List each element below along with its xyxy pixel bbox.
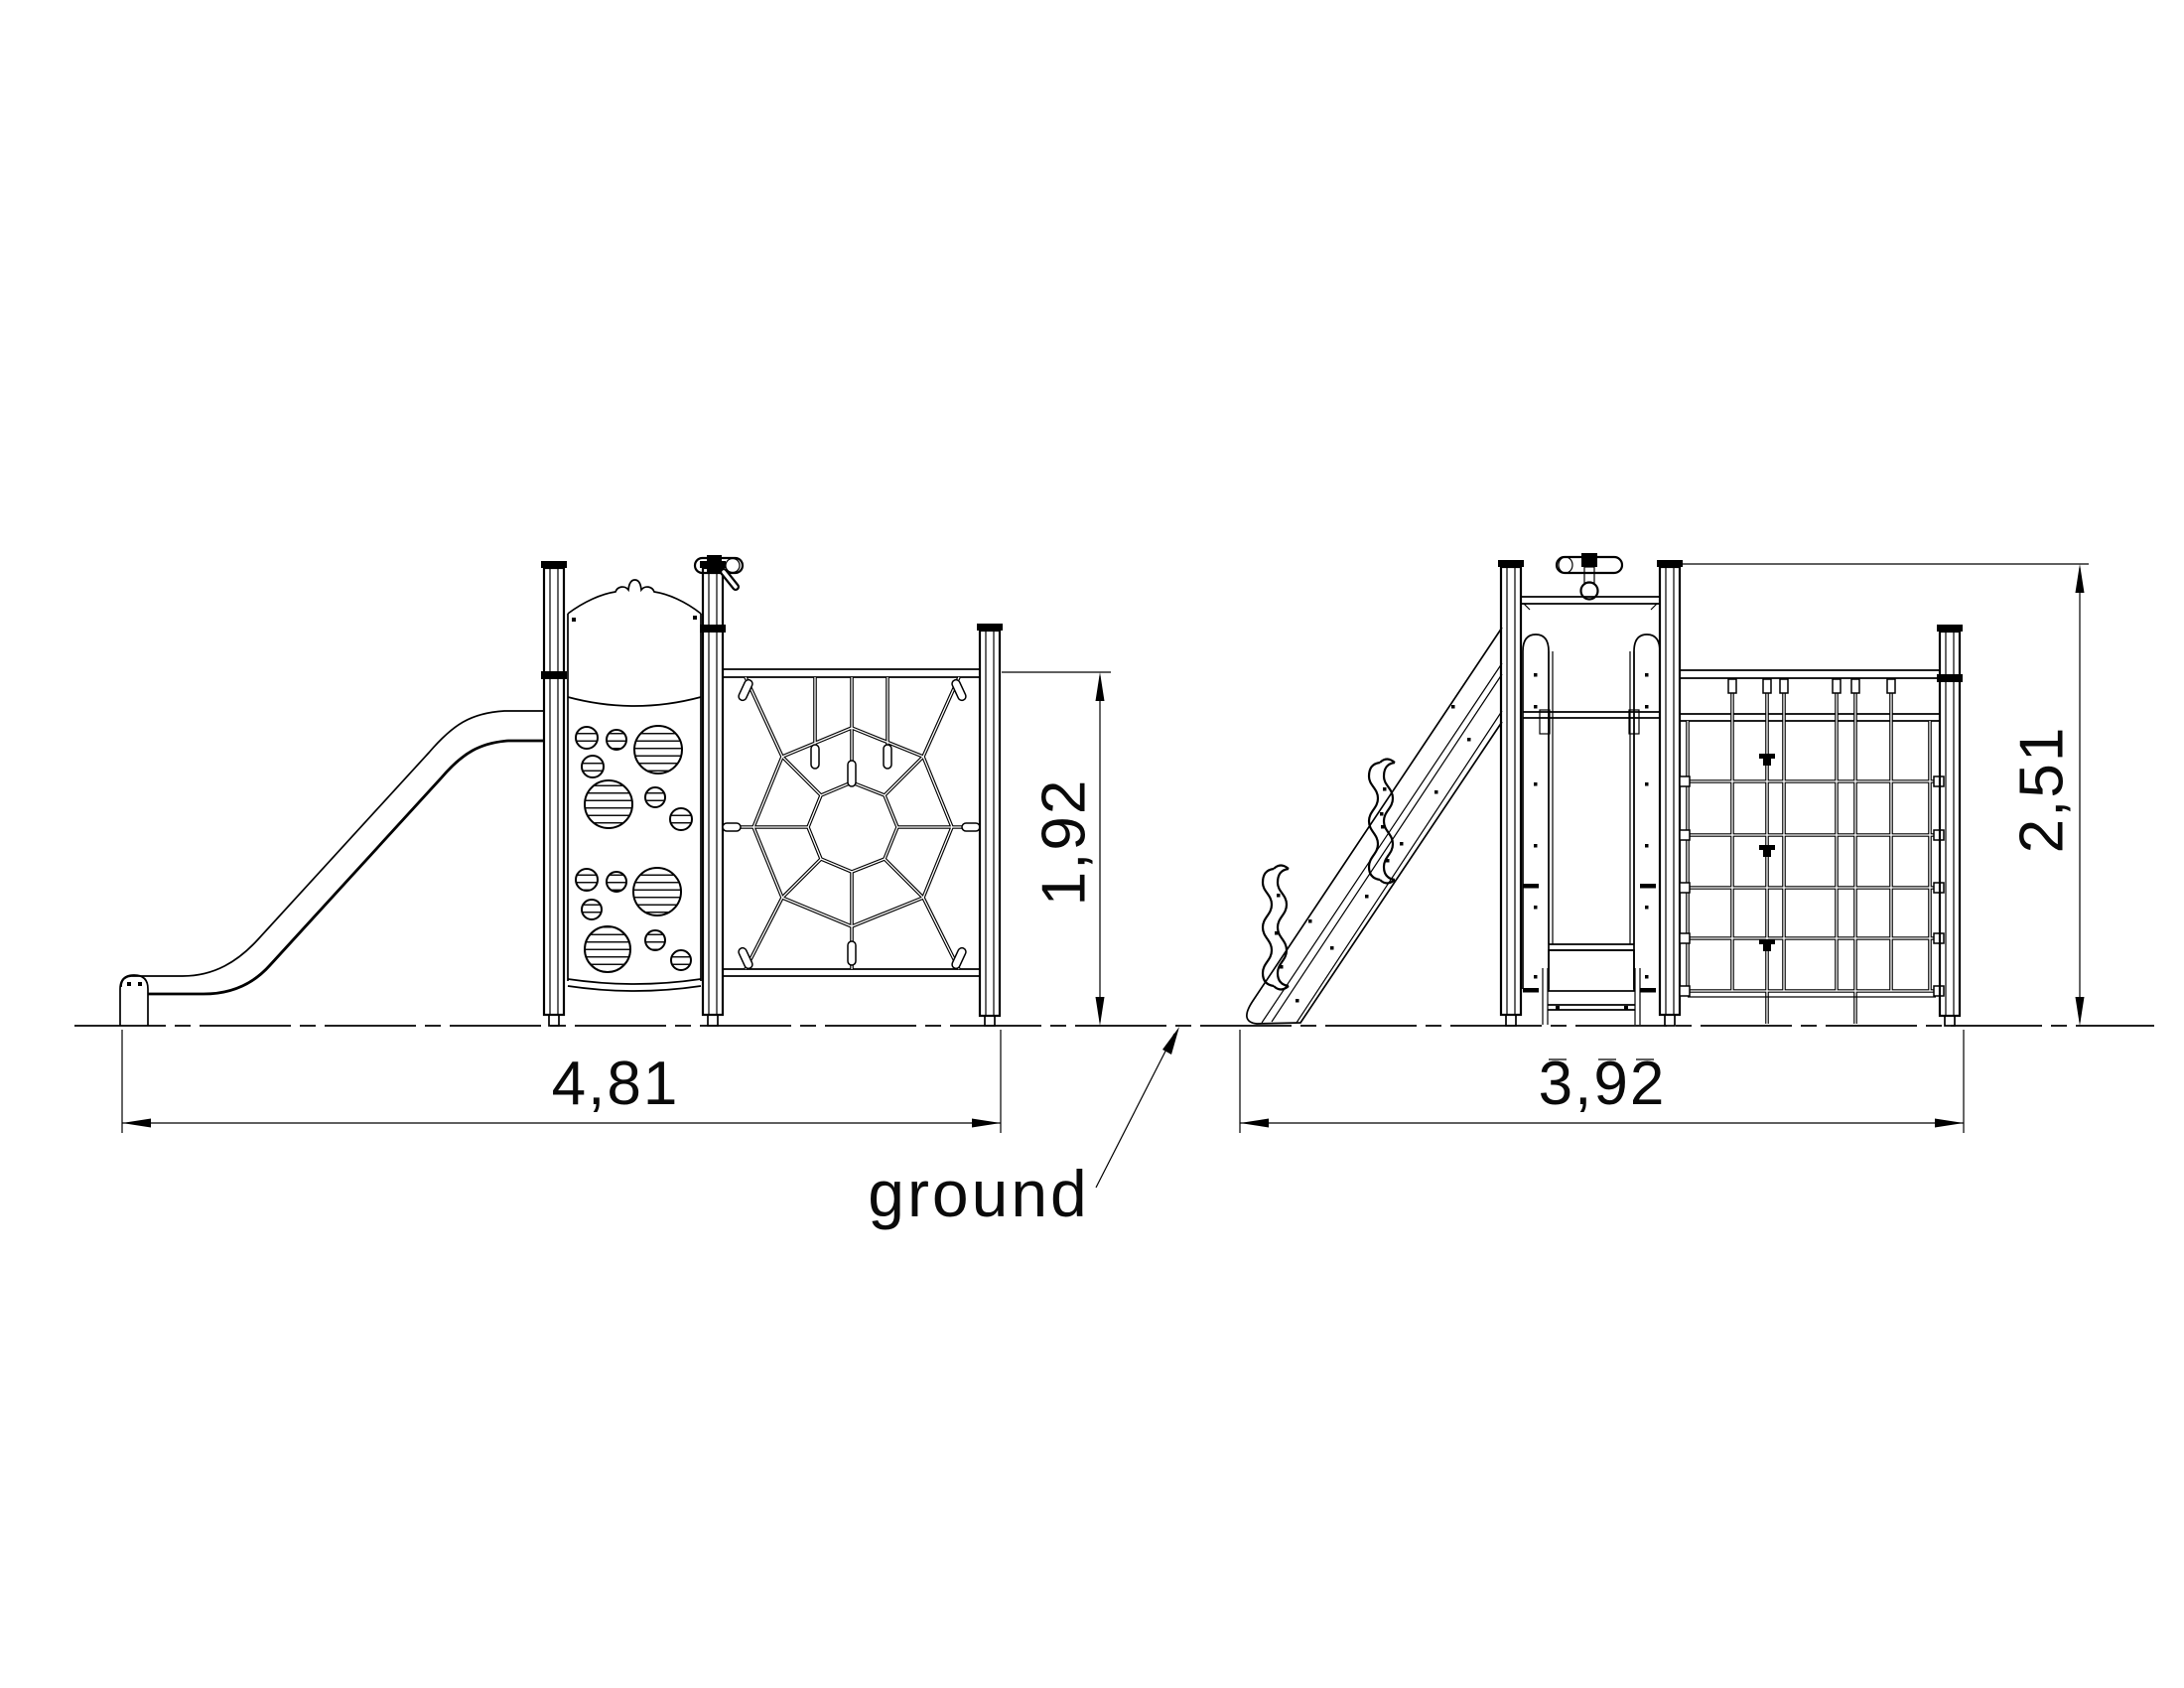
tower <box>1498 553 1683 1059</box>
slide <box>120 711 544 1026</box>
dimension-height-side-view: 1,92 <box>1002 672 1111 1026</box>
dimension-width-front-view: 3,92 <box>1240 1030 1964 1133</box>
side-elevation-view: 1,92 4,81 <box>120 555 1111 1133</box>
front-elevation-view: 2,51 3,92 <box>1240 553 2089 1133</box>
dimension-label-width-side: 4,81 <box>552 1050 680 1118</box>
slide-end-support <box>120 975 148 1026</box>
hole-climbing-panel <box>568 726 701 991</box>
ground-annotation: ground <box>868 1027 1179 1230</box>
slide-end-view <box>1543 651 1640 1025</box>
handle-bar <box>1557 553 1622 600</box>
dimension-height-front-view: 2,51 <box>1682 564 2089 1026</box>
center-post <box>700 561 726 1026</box>
left-post <box>541 561 567 1026</box>
net-right-post <box>977 624 1003 1026</box>
stair-step-cleat <box>1263 866 1289 990</box>
spider-net-climbing-panel <box>723 669 980 976</box>
stairs <box>1247 628 1502 1024</box>
dimension-width-side-view: 4,81 <box>122 1030 1001 1133</box>
crown-top-panel <box>568 580 701 981</box>
dimension-label-height-side: 1,92 <box>1030 778 1099 907</box>
dimension-label-width-front: 3,92 <box>1539 1050 1667 1118</box>
ground-leader-arrow <box>1162 1027 1179 1055</box>
rail-fastener-dots <box>1534 673 1649 979</box>
technical-drawing-page: 1,92 4,81 <box>0 0 2184 1688</box>
dimension-label-height-front: 2,51 <box>2008 726 2077 854</box>
grid-climbing-net <box>1680 625 1963 1026</box>
ground-label: ground <box>868 1157 1090 1230</box>
ground-leader-line <box>1096 1034 1174 1188</box>
drawing-canvas: 1,92 4,81 <box>0 0 2184 1688</box>
